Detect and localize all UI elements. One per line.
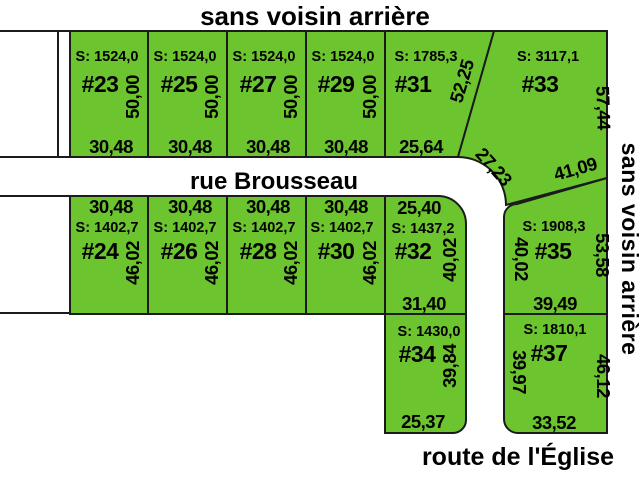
lot-37-left-dim: 39,97 — [509, 350, 530, 394]
lot-27-depth-dim: 50,00 — [280, 75, 301, 119]
plan-canvas: sans voisin arrière sans voisin arrière … — [0, 0, 640, 480]
top-boundary-label: sans voisin arrière — [200, 1, 430, 31]
lot-29-number: #29 — [318, 71, 355, 97]
lot-30-number: #30 — [318, 238, 355, 264]
lot-33-right-dim: 57,44 — [592, 86, 615, 132]
lot-26-width-dim: 30,48 — [168, 196, 212, 217]
lot-29-surface: S: 1524,0 — [312, 49, 375, 65]
lot-32-surface: S: 1437,2 — [392, 221, 455, 237]
lot-37-number: #37 — [531, 340, 568, 366]
lot-26-number: #26 — [161, 238, 198, 264]
lot-35-right-dim: 53,58 — [592, 233, 613, 277]
lot-30-depth-dim: 46,02 — [359, 241, 380, 285]
lot-27-surface: S: 1524,0 — [233, 49, 296, 65]
right-boundary-label: sans voisin arrière — [617, 143, 640, 356]
lot-23-width-dim: 30,48 — [89, 136, 133, 157]
lot-28-depth-dim: 46,02 — [280, 241, 301, 285]
lot-24-depth-dim: 46,02 — [122, 241, 143, 285]
lot-31-surface: S: 1785,3 — [395, 49, 458, 65]
lot-35-surface: S: 1908,3 — [523, 219, 586, 235]
lot-33-number: #33 — [522, 71, 559, 97]
lot-35-left-dim: 40,02 — [511, 237, 532, 281]
lot-24-width-dim: 30,48 — [89, 196, 133, 217]
lot-26-depth-dim: 46,02 — [201, 241, 222, 285]
lot-34-surface: S: 1430,0 — [398, 324, 461, 340]
lot-32-top-dim: 25,40 — [397, 197, 441, 218]
subdivision-plan: sans voisin arrière sans voisin arrière … — [0, 0, 640, 480]
lot-34-right-dim: 39,84 — [439, 343, 460, 388]
route-eglise-label: route de l'Église — [422, 442, 614, 471]
rue-brousseau-label: rue Brousseau — [190, 168, 358, 195]
lot-32-bottom-dim: 31,40 — [402, 293, 446, 314]
lot-24-surface: S: 1402,7 — [76, 220, 139, 236]
lot-37-surface: S: 1810,1 — [524, 322, 587, 338]
lot-34-number: #34 — [399, 341, 437, 367]
lot-31-number: #31 — [395, 71, 433, 97]
lot-23-depth-dim: 50,00 — [122, 75, 143, 119]
lot-23-number: #23 — [82, 71, 119, 97]
lot-25-width-dim: 30,48 — [168, 136, 212, 157]
lot-30-width-dim: 30,48 — [324, 196, 368, 217]
lot-29-width-dim: 30,48 — [324, 136, 368, 157]
lot-25-number: #25 — [161, 71, 199, 97]
lot-32-right-dim: 40,02 — [439, 238, 460, 282]
lot-24-number: #24 — [82, 238, 120, 264]
lot-25-depth-dim: 50,00 — [201, 75, 222, 119]
lot-35-number: #35 — [535, 238, 573, 264]
lot-30-surface: S: 1402,7 — [311, 220, 374, 236]
lot-35-bottom-dim: 39,49 — [533, 293, 577, 314]
lot-27-width-dim: 30,48 — [246, 136, 290, 157]
lot-32-number: #32 — [395, 238, 432, 264]
lot-33-surface: S: 3117,1 — [517, 49, 579, 65]
lot-31-front-dim: 25,64 — [399, 136, 444, 157]
lot-23-surface: S: 1524,0 — [76, 49, 139, 65]
lot-29-depth-dim: 50,00 — [359, 75, 380, 119]
lot-28-width-dim: 30,48 — [246, 196, 290, 217]
lot-28-number: #28 — [240, 238, 278, 264]
lot-34-bottom-dim: 25,37 — [401, 411, 445, 432]
lot-27-number: #27 — [240, 71, 277, 97]
lot-28-surface: S: 1402,7 — [233, 220, 296, 236]
lot-26-surface: S: 1402,7 — [154, 220, 217, 236]
lot-37-bottom-dim: 33,52 — [532, 412, 576, 433]
lot-25-surface: S: 1524,0 — [154, 49, 217, 65]
lot-37-right-dim: 46,12 — [593, 354, 614, 398]
